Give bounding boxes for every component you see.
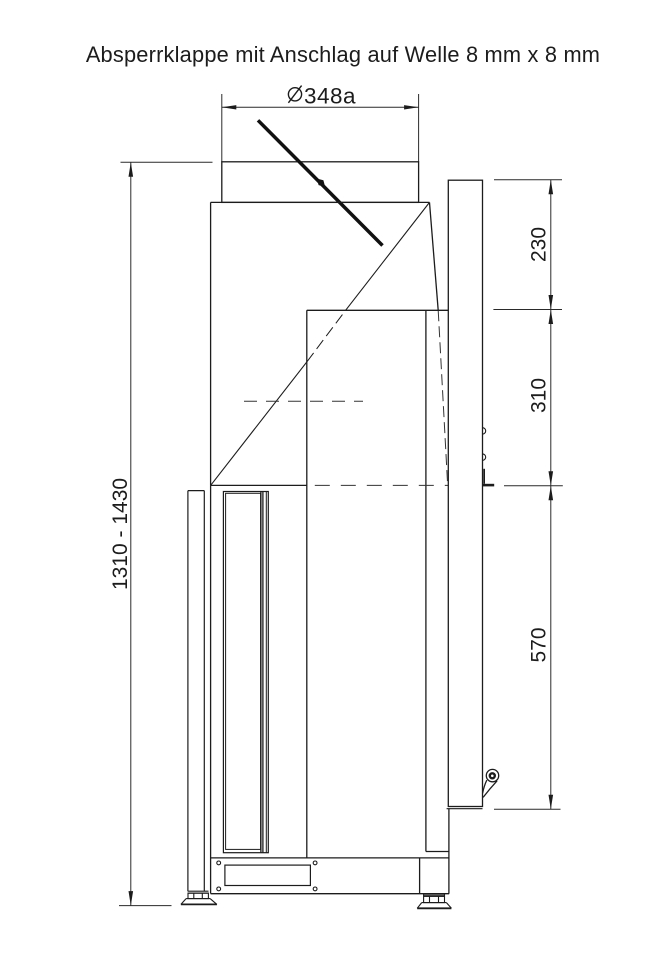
svg-text:310: 310 (528, 378, 551, 413)
svg-text:348a: 348a (304, 83, 356, 108)
svg-text:570: 570 (528, 627, 551, 662)
svg-text:1310 - 1430: 1310 - 1430 (109, 478, 132, 590)
svg-text:230: 230 (528, 227, 551, 262)
svg-text:Absperrklappe mit Anschlag auf: Absperrklappe mit Anschlag auf Welle 8 m… (86, 42, 600, 67)
